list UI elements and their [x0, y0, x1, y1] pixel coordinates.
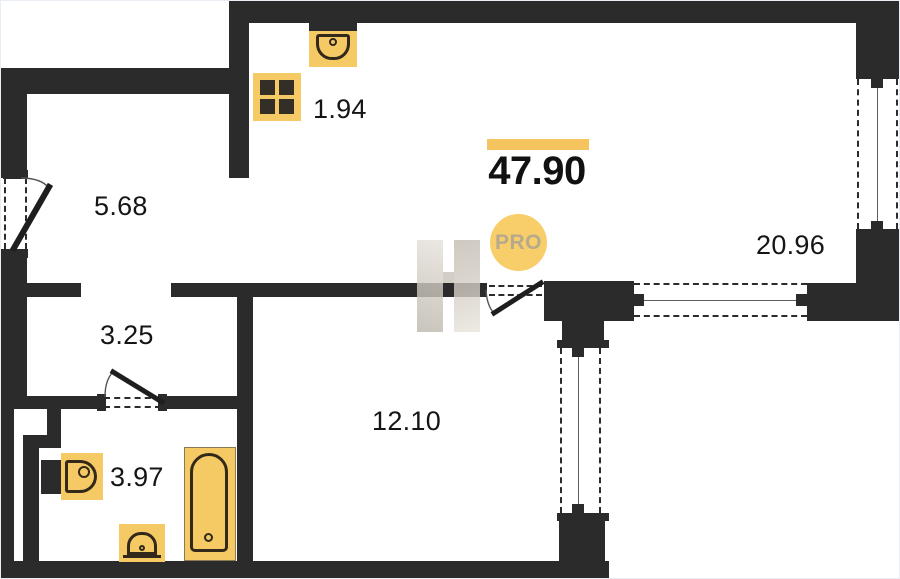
toilet-body [61, 453, 103, 500]
door-opening-dash [104, 397, 161, 399]
pro-badge: PRO [490, 214, 547, 271]
stove-burner [279, 80, 294, 95]
stove-burner [260, 99, 275, 114]
stove-icon [253, 73, 301, 121]
window-opening-dash [634, 283, 807, 285]
window-frame-square [572, 504, 584, 513]
window-opening-dash [599, 348, 601, 513]
window-frame-square [871, 79, 883, 88]
wall-bottom [1, 561, 609, 579]
window-frame-square [572, 348, 584, 357]
logo-watermark-bar [417, 240, 443, 332]
bathtub-icon [184, 447, 236, 561]
area-label-hallway: 5.68 [94, 191, 148, 222]
window-glass-line [578, 353, 579, 508]
wall-left-lower [1, 396, 14, 561]
wall-window-sill-top [557, 340, 609, 348]
window-opening-dash [634, 315, 807, 317]
wall-top [229, 1, 900, 23]
window-frame-square [632, 294, 644, 306]
area-label-living-room: 20.96 [756, 230, 825, 261]
wall-right-upper-block [856, 1, 900, 79]
area-label-bathroom: 3.97 [110, 462, 164, 493]
wall-bathroom-left [23, 448, 39, 561]
window-opening-dash [857, 79, 859, 229]
door-opening-dash [4, 178, 6, 249]
logo-watermark-bar [454, 240, 480, 332]
bedroom-door [486, 283, 541, 313]
area-label-kitchen-niche: 1.94 [313, 94, 367, 125]
wall-bathroom-top-left [14, 396, 101, 409]
wall-corridor-right [237, 283, 253, 561]
stove-burner [260, 80, 275, 95]
wall-hall-top [1, 68, 249, 94]
door-opening-dash [104, 406, 161, 408]
wall-hall-corridor-left [27, 283, 81, 297]
window-opening-dash [896, 79, 898, 229]
wall-bathroom-top-right [159, 396, 253, 409]
window-frame-square [871, 221, 883, 230]
washbasin-drain [139, 545, 145, 551]
washbasin-edge [123, 555, 161, 558]
window-glass-line [877, 85, 878, 225]
sink-drain [329, 38, 337, 46]
door-jamb [158, 394, 167, 411]
bathtub-drain [204, 533, 213, 542]
door-jamb [97, 394, 106, 411]
washbasin-icon [119, 524, 165, 562]
window-opening-dash [560, 348, 562, 513]
washbasin-bowl [127, 532, 157, 555]
floor-plan: 1.94 5.68 3.25 3.97 12.10 20.96 47.90 PR… [0, 0, 900, 579]
window-frame-square [796, 294, 808, 306]
wall-bathroom-jog [23, 435, 61, 448]
door-opening-dash [489, 294, 542, 296]
kitchen-sink-icon [309, 23, 357, 67]
window-glass-line [644, 300, 799, 301]
area-label-bedroom: 12.10 [372, 406, 441, 437]
toilet-detail [78, 466, 90, 478]
wall-t-block [544, 281, 634, 321]
wall-left-upper [1, 68, 27, 178]
door-opening-dash [25, 178, 27, 249]
stove-burner [279, 99, 294, 114]
wall-left-mid [1, 249, 27, 396]
wall-entry-sill-bottom [3, 249, 28, 258]
area-label-corridor: 3.25 [100, 320, 154, 351]
toilet-tank [41, 460, 63, 494]
total-area-value: 47.90 [456, 149, 618, 194]
door-opening-dash [489, 285, 542, 287]
wall-right-lower-block [856, 229, 900, 321]
wall-bathroom-stub [47, 409, 61, 437]
wall-bedroom-right-block [559, 520, 605, 579]
sink-mount [309, 23, 357, 31]
entry-door [14, 178, 49, 248]
